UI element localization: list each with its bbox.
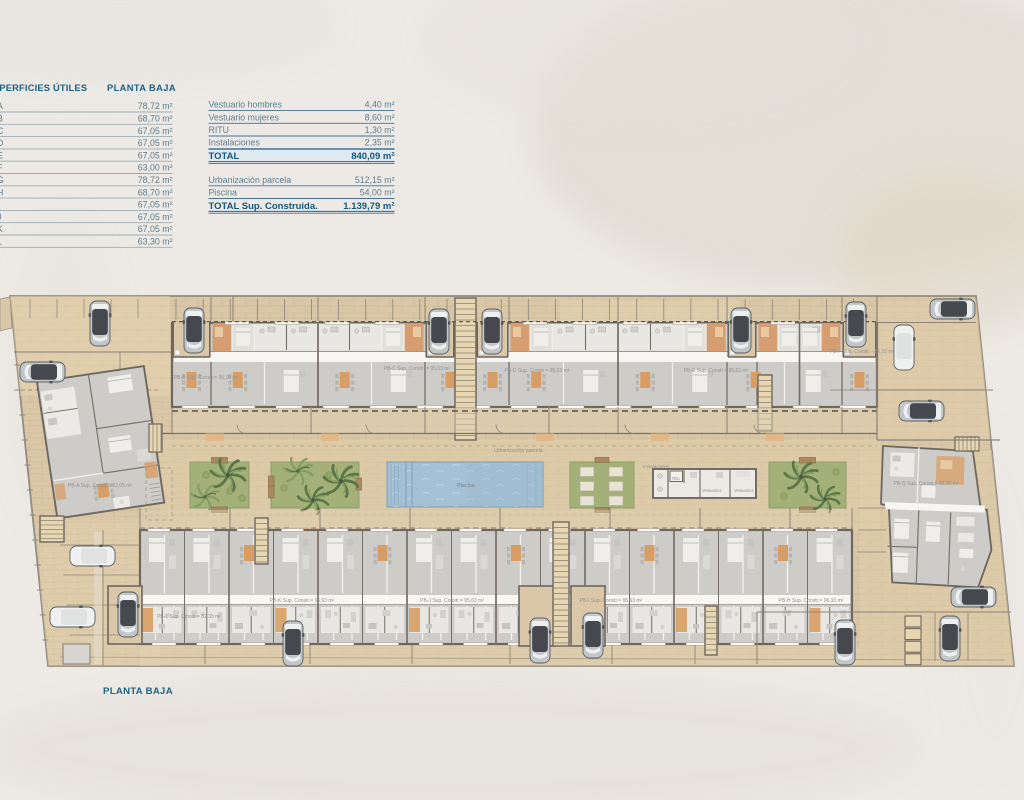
svg-text:67,05 m²: 67,05 m² <box>138 200 173 210</box>
svg-text:78,72 m²: 78,72 m² <box>138 175 173 185</box>
svg-text:PB-D Sup. Constr.= 95,63 m²: PB-D Sup. Constr.= 95,63 m² <box>505 368 570 374</box>
svg-text:68,70 m²: 68,70 m² <box>138 187 173 197</box>
svg-text:63,30 m²: 63,30 m² <box>138 237 173 247</box>
svg-text:Vestuarios: Vestuarios <box>734 488 754 493</box>
svg-text:Piscina: Piscina <box>209 188 237 198</box>
svg-text:Ritu: Ritu <box>672 476 680 481</box>
svg-text:PB-I Sup. Constr.= 95,63 m²: PB-I Sup. Constr.= 95,63 m² <box>580 598 643 604</box>
svg-text:Vestuarios: Vestuarios <box>702 488 722 493</box>
svg-text:78,72 m²: 78,72 m² <box>138 101 173 111</box>
svg-text:67,05 m²: 67,05 m² <box>138 224 173 234</box>
svg-text:67,05 m²: 67,05 m² <box>138 150 173 160</box>
svg-text:1.139,79 m²: 1.139,79 m² <box>343 201 394 212</box>
svg-text:1,30 m²: 1,30 m² <box>365 125 395 135</box>
svg-text:PLANTA BAJA: PLANTA BAJA <box>103 686 173 697</box>
svg-text:PB-J Sup. Constr.= 95,63 m²: PB-J Sup. Constr.= 95,63 m² <box>420 598 484 604</box>
svg-text:G: G <box>0 175 4 185</box>
svg-text:63,00 m²: 63,00 m² <box>138 163 173 173</box>
svg-text:2,35 m²: 2,35 m² <box>365 138 395 148</box>
svg-text:67,05 m²: 67,05 m² <box>138 126 173 136</box>
svg-text:TOTAL: TOTAL <box>209 151 240 162</box>
svg-text:H: H <box>0 187 3 197</box>
svg-text:PB-Q Sup. Constr.n 92,05 m²: PB-Q Sup. Constr.n 92,05 m² <box>893 481 958 487</box>
svg-text:68,70 m²: 68,70 m² <box>138 114 173 124</box>
svg-text:D: D <box>0 138 3 148</box>
svg-text:840,09 m²: 840,09 m² <box>351 151 394 162</box>
svg-text:Urbanización parcela: Urbanización parcela <box>494 448 543 454</box>
svg-text:Vestuario mujeres: Vestuario mujeres <box>209 112 280 122</box>
svg-text:L: L <box>0 237 2 247</box>
svg-text:Vestuario hombres: Vestuario hombres <box>209 100 283 110</box>
svg-text:4,40 m²: 4,40 m² <box>365 100 395 110</box>
svg-text:PB-H Sup. Constr.= 96,10 m²: PB-H Sup. Constr.= 96,10 m² <box>779 598 844 604</box>
svg-text:512,15 m²: 512,15 m² <box>355 175 395 185</box>
svg-text:SUPERFICIES ÚTILES: SUPERFICIES ÚTILES <box>0 82 87 93</box>
svg-text:B: B <box>0 114 3 124</box>
svg-text:PB-E Sup. Constr.= 95,63 m²: PB-E Sup. Constr.= 95,63 m² <box>684 368 749 374</box>
svg-text:67,05 m²: 67,05 m² <box>138 138 173 148</box>
svg-text:PB-A Sup. Constr.n 92,05 m²: PB-A Sup. Constr.n 92,05 m² <box>68 483 133 489</box>
svg-text:PB-K Sup. Constr.= 95,63 m²: PB-K Sup. Constr.= 95,63 m² <box>270 598 335 604</box>
svg-text:8,60 m²: 8,60 m² <box>365 112 395 122</box>
svg-text:RITU: RITU <box>209 125 230 135</box>
svg-text:J: J <box>0 212 1 222</box>
svg-text:PB-B Sup. Constr.= 96,10 m²: PB-B Sup. Constr.= 96,10 m² <box>174 375 239 381</box>
svg-text:67,05 m²: 67,05 m² <box>138 212 173 222</box>
svg-text:Instalaciones: Instalaciones <box>643 464 670 469</box>
svg-text:A: A <box>0 101 3 111</box>
svg-text:Urbanización parcela: Urbanización parcela <box>209 175 292 185</box>
svg-text:Instalaciones: Instalaciones <box>209 138 261 148</box>
svg-text:Piscina: Piscina <box>457 483 476 489</box>
svg-text:K: K <box>0 224 3 234</box>
svg-text:E: E <box>0 150 3 160</box>
svg-text:54,00 m²: 54,00 m² <box>360 188 395 198</box>
svg-text:PB-L Sup. Constr.= 82,33 m²: PB-L Sup. Constr.= 82,33 m² <box>157 614 221 620</box>
svg-text:PB-F Sup. Constr. - 82,33 m²: PB-F Sup. Constr. - 82,33 m² <box>830 349 895 355</box>
svg-text:PLANTA BAJA: PLANTA BAJA <box>107 83 176 93</box>
svg-text:PB-C Sup. Constr. = 95,63 m²: PB-C Sup. Constr. = 95,63 m² <box>384 366 451 372</box>
svg-text:TOTAL Sup. Construida.: TOTAL Sup. Construida. <box>209 201 318 212</box>
